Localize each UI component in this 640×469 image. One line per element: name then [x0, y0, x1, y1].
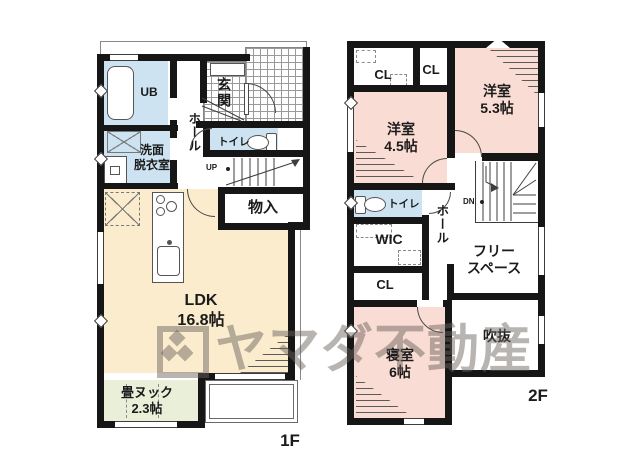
window	[115, 421, 177, 428]
wall-segment	[482, 153, 545, 161]
wall-segment	[218, 194, 225, 223]
room-label-storage: 物入	[233, 199, 293, 217]
eave-line	[300, 229, 304, 380]
shoe-cabinet	[210, 63, 245, 76]
room-label-toilet-2f: トイレ	[388, 198, 420, 211]
floor2-label: 2F	[518, 386, 558, 406]
toilet-bowl-1f	[247, 135, 269, 150]
stair-rail-line	[475, 222, 538, 223]
room-label-freespace: フリー スペース	[444, 243, 544, 277]
wall-segment	[347, 217, 429, 224]
wall-segment	[218, 187, 310, 194]
room-label-void: 吹抜	[467, 328, 527, 345]
window	[538, 93, 545, 127]
window	[347, 106, 354, 152]
room-label-toilet-1f: トイレ	[218, 136, 250, 149]
stairs-down-label: DN	[463, 197, 475, 207]
wall-segment	[347, 41, 545, 48]
wall-segment	[303, 47, 310, 229]
kitchen-sink	[157, 246, 180, 276]
room-label-line: フリー	[444, 243, 544, 260]
room-label-line: 畳ヌック	[97, 385, 197, 401]
room-label-line: 2.3帖	[97, 401, 197, 417]
floor1-label: 1F	[270, 431, 310, 451]
room-label-western53: 洋室 5.3帖	[457, 83, 537, 117]
stove-burner	[166, 201, 177, 212]
wall-segment	[422, 215, 429, 300]
room-label-line: LDK	[141, 291, 261, 311]
room-label-genkan: 玄関	[215, 77, 232, 109]
wall-segment	[198, 373, 205, 428]
entrance-door-leaf	[244, 83, 249, 115]
room-label-washroom: 洗面 脱衣室	[112, 143, 192, 172]
refrigerator-space	[105, 192, 140, 226]
toilet-bowl-2f	[364, 197, 386, 212]
wall-segment	[445, 370, 545, 377]
room-label-bedroom: 寝室 6帖	[360, 347, 440, 381]
wall-segment	[347, 183, 455, 190]
room-label-line: 4.5帖	[361, 138, 441, 155]
wall-segment	[203, 150, 310, 157]
wall-segment	[347, 300, 417, 307]
window	[215, 373, 285, 380]
room-label-line: 脱衣室	[112, 158, 192, 173]
stairs-up-label: UP	[206, 163, 217, 173]
room-label-line: 16.8帖	[141, 311, 261, 331]
wood-deck	[205, 380, 298, 423]
wall-segment	[97, 125, 178, 131]
room-label-line: 洋室	[361, 121, 441, 138]
wall-segment	[445, 300, 452, 425]
hanger-pipe	[356, 50, 376, 63]
room-label-western45: 洋室 4.5帖	[361, 121, 441, 155]
wall-segment	[97, 183, 178, 189]
room-label-line: 洗面	[112, 143, 192, 158]
wall-segment	[196, 121, 310, 128]
floor-plan-canvas: UB 洗面 脱衣室 玄関 ホール トイレ UP 物入 LDK 16.8帖 畳ヌッ…	[0, 0, 640, 469]
wall-segment	[347, 266, 429, 273]
wall-segment	[218, 223, 310, 230]
room-label-line: スペース	[444, 260, 544, 277]
room-label-closet3: CL	[365, 277, 405, 293]
window	[97, 232, 104, 284]
window	[110, 54, 138, 61]
sink-faucet	[167, 240, 172, 245]
wall-segment	[200, 61, 207, 103]
wall-segment	[347, 418, 452, 425]
wall-segment	[443, 300, 452, 307]
room-label-line: 5.3帖	[457, 100, 537, 117]
room-label-line: 洋室	[457, 83, 537, 100]
window	[538, 316, 545, 344]
door-opening	[170, 98, 177, 120]
room-label-hall-1f: ホール	[185, 112, 200, 153]
room-label-closet1: CL	[363, 67, 403, 83]
room-label-ub: UB	[129, 85, 169, 100]
wall-segment	[447, 293, 545, 300]
wall-segment	[347, 85, 455, 92]
wall-segment	[447, 41, 455, 158]
window	[404, 418, 424, 425]
hanger-pipe	[398, 250, 421, 265]
stove-burner	[156, 195, 165, 204]
room-label-ldk: LDK 16.8帖	[141, 291, 261, 330]
wall-segment	[288, 222, 295, 380]
room-label-closet2: CL	[411, 62, 451, 78]
room-label-nook: 畳ヌック 2.3帖	[97, 385, 197, 417]
room-label-hall-2f: ホール	[433, 204, 448, 245]
room-label-line: 6帖	[360, 364, 440, 381]
stove-burner	[156, 207, 165, 216]
stair-rail-line	[475, 161, 476, 222]
room-label-line: 寝室	[360, 347, 440, 364]
room-label-wic: WIC	[359, 231, 419, 248]
